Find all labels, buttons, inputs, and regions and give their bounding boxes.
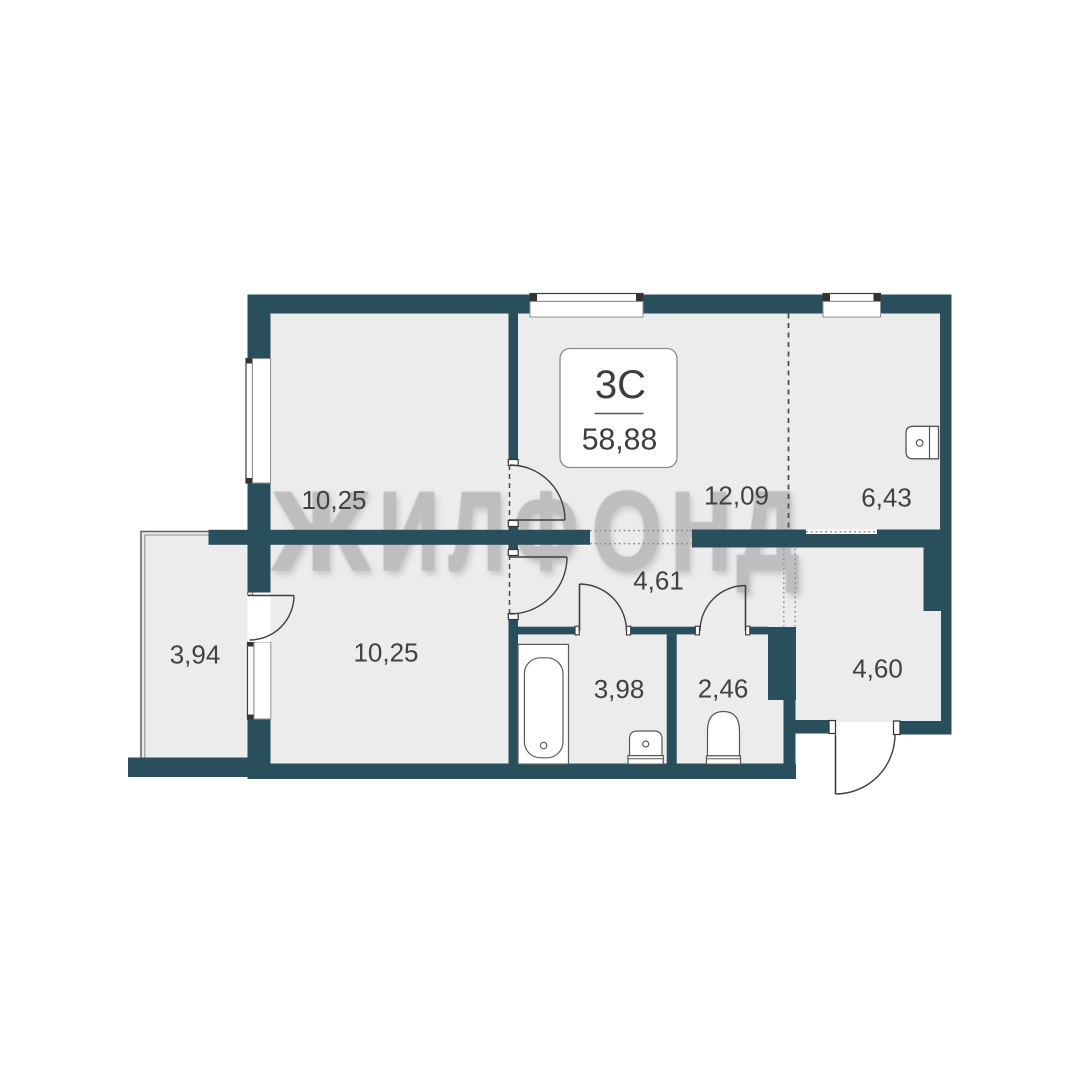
svg-text:4,61: 4,61 <box>633 566 684 596</box>
svg-text:58,88: 58,88 <box>582 424 658 457</box>
svg-text:3С: 3С <box>595 363 646 407</box>
svg-text:3,94: 3,94 <box>170 640 221 670</box>
svg-text:10,25: 10,25 <box>301 485 366 515</box>
svg-text:3,98: 3,98 <box>594 674 645 704</box>
svg-text:6,43: 6,43 <box>861 483 912 513</box>
svg-text:2,46: 2,46 <box>698 674 749 704</box>
svg-text:10,25: 10,25 <box>353 638 418 668</box>
svg-text:4,60: 4,60 <box>852 654 903 684</box>
svg-text:12,09: 12,09 <box>704 481 769 511</box>
